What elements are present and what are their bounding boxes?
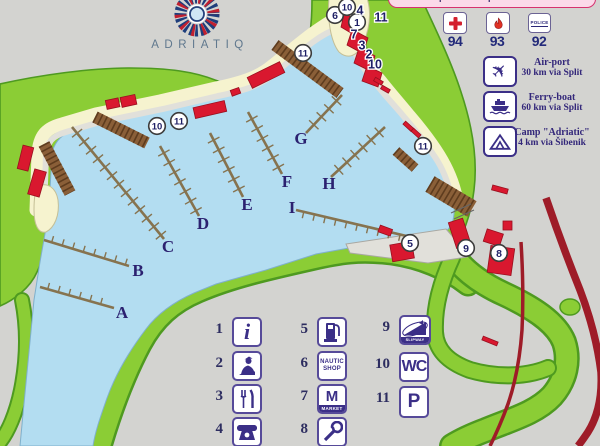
pier-label: G	[294, 129, 307, 148]
legend-item-restaurant: 3	[232, 384, 262, 414]
market-label: MARKET	[319, 405, 345, 412]
wc-label: WC	[402, 358, 427, 376]
service-wrench-icon	[317, 417, 347, 446]
red-cross-glyph	[448, 16, 463, 31]
pier-label: B	[132, 261, 143, 280]
berth-marker: 5	[407, 238, 413, 250]
berth-marker: 11	[418, 141, 429, 152]
berth-marker: 6	[332, 10, 338, 22]
marina-map-page: 10111161014117321011598 ABCDEFGHI ADRIAT…	[0, 0, 600, 446]
legend-number: 6	[301, 355, 309, 372]
nautic-shop-line1: NAUTIC	[320, 359, 344, 365]
market-letter: M	[326, 390, 339, 403]
legend-item-fuel: 5	[317, 317, 347, 347]
legend-item-telephone: 4	[232, 417, 262, 446]
land-islet	[560, 299, 580, 315]
pier-label: D	[197, 214, 209, 233]
red-cross-icon	[443, 12, 467, 34]
legend-number: 2	[216, 355, 224, 372]
legend-number: 3	[216, 388, 224, 405]
market-icon: M MARKET	[317, 384, 347, 414]
fire-icon	[486, 12, 510, 34]
service-airport-name: Air-port	[505, 57, 599, 68]
legend-item-parking: 11 P	[399, 386, 429, 418]
pier-label: A	[116, 303, 129, 322]
phone-number-ambulance: 94	[440, 33, 470, 49]
berth-marker: 11	[174, 116, 185, 127]
service-airport-distance: 30 km via Split	[505, 68, 599, 78]
banner-important-numbers: Important telephone numbers	[388, 0, 596, 8]
legend-number: 5	[301, 321, 309, 338]
nautic-shop-icon: NAUTIC SHOP	[317, 351, 347, 381]
legend-item-customs: 2	[232, 351, 262, 381]
berth-marker: 8	[496, 248, 502, 260]
berth-marker: 3	[359, 39, 366, 53]
nautic-shop-line2: SHOP	[323, 366, 341, 372]
berth-marker: 7	[351, 28, 358, 42]
parking-icon: P	[399, 386, 429, 418]
slipway-icon: SLIPWAY	[399, 315, 431, 345]
police-icon: POLICE	[528, 13, 551, 33]
police-icon-label: POLICE	[531, 20, 549, 27]
service-ferry-name: Ferry-boat	[505, 92, 599, 103]
fire-glyph	[491, 16, 506, 31]
pier-label: C	[162, 237, 174, 256]
phone-number-police: 92	[524, 33, 554, 49]
legend-number: 1	[216, 321, 224, 338]
legend-item-wc: 10 WC	[399, 352, 429, 382]
fuel-icon	[317, 317, 347, 347]
telephone-icon	[232, 417, 262, 446]
berth-marker: 11	[374, 11, 387, 25]
legend-number: 9	[383, 319, 391, 336]
slipway-label: SLIPWAY	[401, 337, 429, 343]
legend-item-service: 8	[317, 417, 347, 446]
legend-number: 7	[301, 388, 309, 405]
service-camp-distance: 4 km via Šibenik	[505, 138, 599, 148]
legend-item-nautic-shop: 6 NAUTIC SHOP	[317, 351, 347, 381]
legend-number: 10	[375, 356, 390, 373]
service-ferry-distance: 60 km via Split	[505, 103, 599, 113]
pier-label: H	[322, 174, 335, 193]
pier-label: E	[241, 195, 252, 214]
wc-icon: WC	[399, 352, 429, 382]
berth-marker: 10	[342, 2, 353, 13]
pier-label: I	[289, 198, 296, 217]
logo-center	[190, 7, 204, 21]
parking-label: P	[408, 391, 421, 413]
legend-item-info: 1 i	[232, 317, 262, 347]
berth-marker: 10	[368, 58, 382, 72]
restaurant-icon	[232, 384, 262, 414]
berth-marker: 9	[463, 243, 469, 255]
legend-item-market: 7 M MARKET	[317, 384, 347, 414]
legend-item-slipway: 9 SLIPWAY	[399, 315, 431, 345]
legend-number: 4	[216, 421, 224, 438]
legend-number: 11	[376, 390, 390, 407]
brand-name: ADRIATIQ	[151, 39, 248, 51]
berth-marker: 11	[298, 48, 309, 59]
phone-number-fire: 93	[482, 33, 512, 49]
info-icon: i	[232, 317, 262, 347]
berth-marker: 10	[152, 121, 163, 132]
berth-marker: 4	[357, 4, 364, 18]
customs-icon	[232, 351, 262, 381]
legend-number: 8	[301, 421, 309, 438]
service-camp-name: Camp "Adriatic"	[505, 127, 599, 138]
pier-label: F	[282, 172, 292, 191]
